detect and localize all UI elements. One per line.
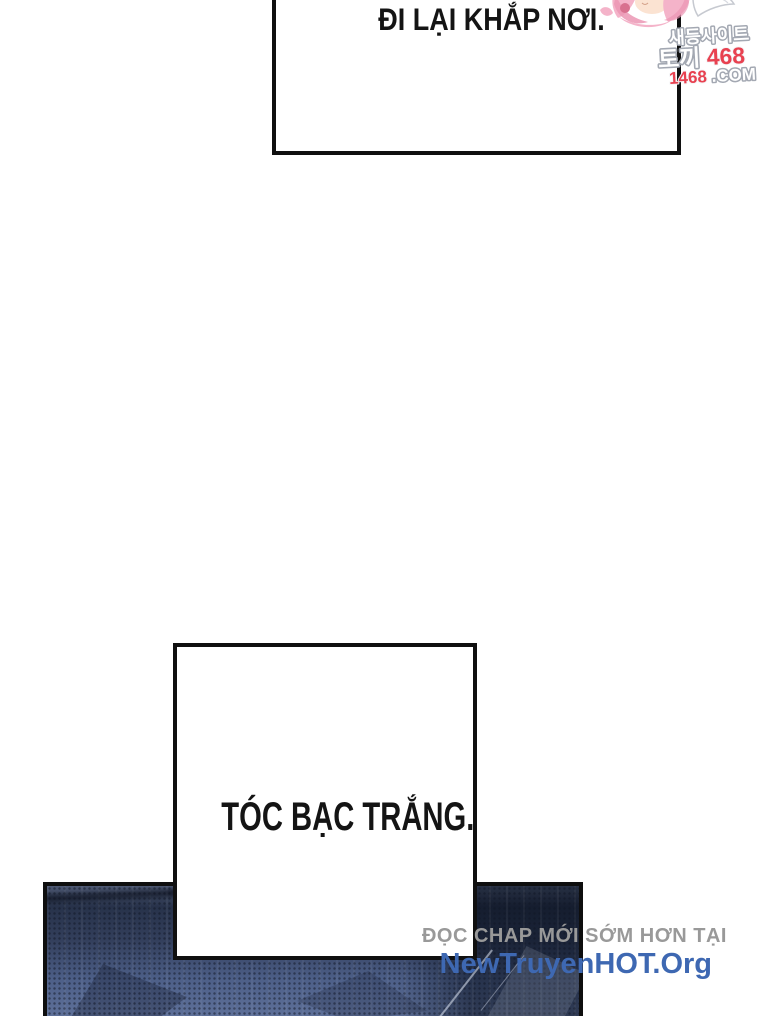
promo-text: ĐỌC CHAP MỚI SỚM HƠN TẠI	[422, 925, 727, 947]
watermark-sticker: 새등사이트 토끼 468 1468 .COM	[598, 0, 760, 97]
chibi-character-icon	[600, 0, 734, 27]
background-facet	[67, 964, 187, 1016]
speech-panel-middle: TÓC BẠC TRẮNG.	[173, 643, 477, 960]
svg-text:1468 .COM: 1468 .COM	[669, 65, 757, 89]
background-facet	[297, 971, 427, 1016]
watermark-text: 새등사이트 토끼 468 1468 .COM	[656, 24, 756, 89]
speech-text-middle: TÓC BẠC TRẮNG.	[221, 797, 433, 837]
watermark-line3-number: 1468	[669, 67, 708, 88]
site-name-text: NewTruyenHOT.Org	[440, 949, 712, 981]
watermark-line3-suffix: .COM	[711, 65, 756, 86]
watermark-graphic: 새등사이트 토끼 468 1468 .COM	[598, 0, 760, 92]
